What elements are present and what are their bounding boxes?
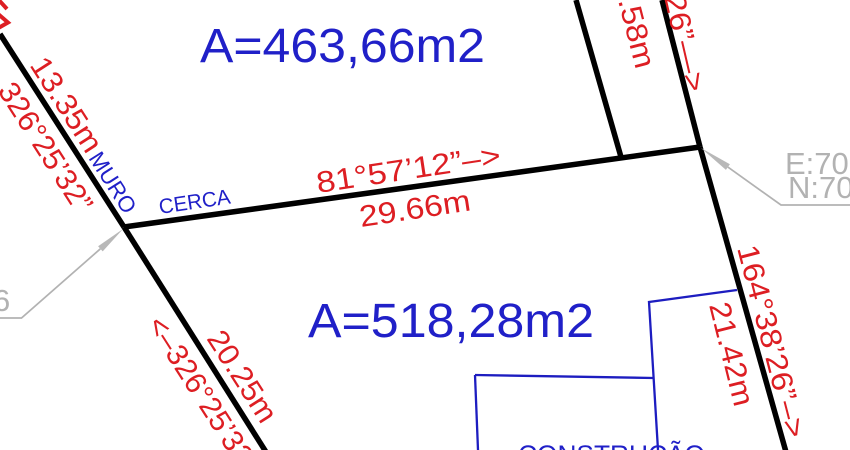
svg-text:CONSTRUÇÃO: CONSTRUÇÃO (518, 440, 705, 450)
svg-text:A=518,28m2: A=518,28m2 (308, 295, 594, 348)
svg-text:N:709: N:709 (788, 170, 850, 205)
svg-text:6: 6 (0, 283, 10, 318)
svg-text:A=463,66m2: A=463,66m2 (200, 20, 485, 73)
